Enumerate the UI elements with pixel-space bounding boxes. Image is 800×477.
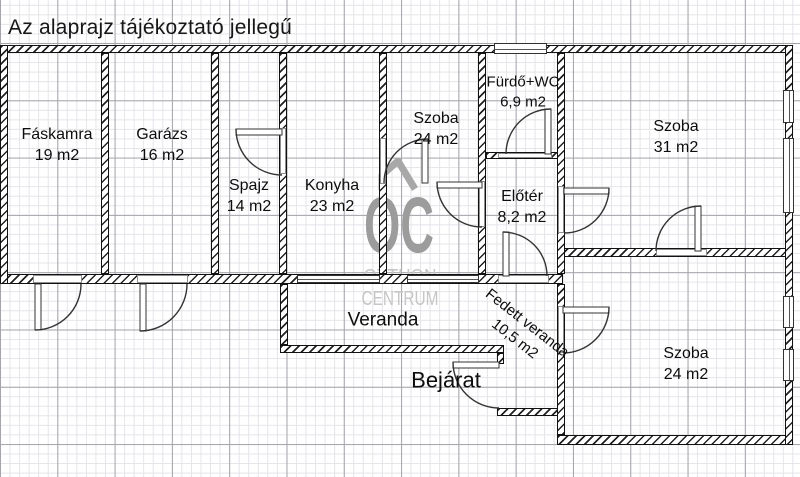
window-mullion bbox=[408, 279, 478, 280]
door-arc bbox=[35, 284, 81, 330]
door-arc bbox=[236, 129, 282, 175]
door-leaf bbox=[563, 307, 609, 313]
door-arc bbox=[437, 182, 482, 227]
wall bbox=[0, 45, 8, 284]
room-area: 24 m2 bbox=[663, 365, 708, 386]
window bbox=[783, 349, 794, 381]
room-area: 8,2 m2 bbox=[498, 208, 547, 229]
door-arc bbox=[564, 188, 609, 233]
room-label-veranda: Veranda bbox=[348, 309, 419, 334]
room-label-szoba: Szoba31 m2 bbox=[653, 117, 698, 159]
window bbox=[494, 43, 547, 54]
window bbox=[407, 275, 479, 283]
window-mullion bbox=[789, 350, 790, 380]
door-sill bbox=[498, 275, 549, 283]
door-sill bbox=[33, 275, 82, 283]
wall bbox=[280, 345, 504, 353]
window bbox=[783, 90, 794, 123]
door-leaf bbox=[35, 284, 41, 330]
room-name: Szoba bbox=[663, 344, 708, 365]
door-sill bbox=[558, 186, 564, 233]
window bbox=[783, 138, 794, 213]
door-arc bbox=[656, 206, 701, 251]
room-label-bej-rat: Bejárat bbox=[411, 367, 481, 396]
room-area: 24 m2 bbox=[413, 130, 458, 151]
wall bbox=[101, 53, 109, 274]
watermark: OC OTTHON CENTRUM bbox=[0, 0, 800, 477]
door-arc bbox=[503, 232, 547, 276]
wall bbox=[478, 53, 486, 274]
room-name: Fáskamra bbox=[21, 125, 92, 146]
door-leaf bbox=[564, 188, 609, 194]
door-leaf bbox=[140, 284, 146, 331]
room-label-f-skamra: Fáskamra19 m2 bbox=[21, 125, 92, 167]
room-name: Bejárat bbox=[411, 367, 481, 396]
room-area: 14 m2 bbox=[227, 197, 271, 218]
room-area: 16 m2 bbox=[136, 146, 188, 167]
watermark-centrum-text: CENTRUM bbox=[362, 288, 439, 310]
room-label-szoba: Szoba24 m2 bbox=[413, 109, 458, 151]
door-sill bbox=[380, 138, 386, 184]
room-name: Veranda bbox=[348, 309, 419, 334]
wall bbox=[497, 408, 565, 416]
door-leaf bbox=[236, 129, 282, 135]
room-area: 23 m2 bbox=[305, 197, 359, 218]
wall bbox=[4, 45, 793, 53]
room-name: Fürdő+WC bbox=[487, 73, 560, 93]
door-sill bbox=[498, 153, 552, 158]
door-leaf bbox=[545, 109, 551, 154]
watermark-oc-text: OC bbox=[364, 180, 434, 269]
room-area: 31 m2 bbox=[653, 138, 698, 159]
door-arc bbox=[140, 284, 187, 331]
doors-layer bbox=[0, 0, 800, 477]
room-name: Szoba bbox=[653, 117, 698, 138]
room-name: Garázs bbox=[136, 125, 188, 146]
room-label-gar-zs: Garázs16 m2 bbox=[136, 125, 188, 167]
room-area: 19 m2 bbox=[21, 146, 92, 167]
room-label-el-t-r: Előtér8,2 m2 bbox=[498, 187, 547, 229]
room-label-konyha: Konyha23 m2 bbox=[305, 176, 359, 218]
window-mullion bbox=[789, 297, 790, 327]
door-sill bbox=[656, 249, 707, 256]
room-label-spajz: Spajz14 m2 bbox=[227, 176, 271, 218]
room-name: Spajz bbox=[227, 176, 271, 197]
plan-disclaimer-title: Az alaprajz tájékoztató jellegű bbox=[8, 16, 292, 40]
room-name: Előtér bbox=[498, 187, 547, 208]
room-label-f-rd-wc: Fürdő+WC6,9 m2 bbox=[487, 73, 560, 112]
door-sill bbox=[137, 275, 188, 283]
door-sill bbox=[280, 128, 286, 174]
window-mullion bbox=[495, 49, 546, 50]
wall bbox=[280, 284, 288, 345]
wall bbox=[557, 435, 793, 445]
door-arc bbox=[506, 109, 551, 154]
window-mullion bbox=[789, 91, 790, 122]
room-area: 6,9 m2 bbox=[487, 92, 560, 112]
door-leaf bbox=[503, 232, 509, 276]
room-label-szoba: Szoba24 m2 bbox=[663, 344, 708, 386]
window-mullion bbox=[789, 139, 790, 212]
wall bbox=[497, 353, 504, 364]
room-name: Konyha bbox=[305, 176, 359, 197]
window bbox=[783, 296, 794, 328]
room-name: Szoba bbox=[413, 109, 458, 130]
window-mullion bbox=[298, 279, 379, 280]
window bbox=[297, 275, 380, 283]
door-leaf bbox=[437, 182, 482, 188]
floor-plan-canvas: Az alaprajz tájékoztató jellegű OC OTTHO… bbox=[0, 0, 800, 477]
door-leaf bbox=[695, 206, 701, 251]
wall bbox=[211, 53, 219, 274]
door-sill bbox=[479, 181, 485, 227]
